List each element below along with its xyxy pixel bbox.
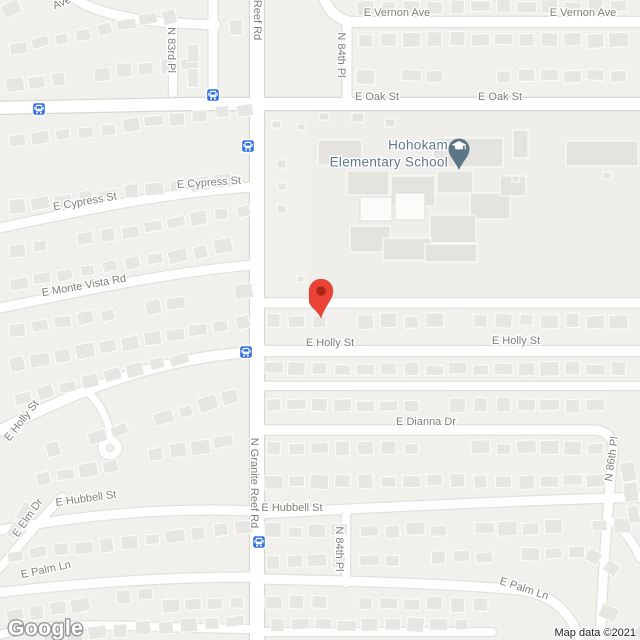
marker-inner-dot <box>316 286 326 296</box>
school-poi-label-line1[interactable]: Hohokam <box>388 138 448 153</box>
map-svg: AveE Vernon AveE Vernon AveReef RdN 83rd… <box>0 0 640 640</box>
map-layers: AveE Vernon AveE Vernon AveReef RdN 83rd… <box>0 0 640 640</box>
street-label-dianna-dr: E Dianna Dr <box>396 416 456 428</box>
street-label-hubbell-st-e: E Hubbell St <box>261 502 322 514</box>
google-logo-watermark[interactable]: Google <box>8 617 83 640</box>
street-label-n-84th-pl-top: N 84th Pl <box>335 32 347 77</box>
street-label-vernon-ave-1: E Vernon Ave <box>364 7 430 19</box>
street-label-holly-st-e1: E Holly St <box>306 337 354 349</box>
bus-stop-icon[interactable] <box>242 140 255 153</box>
map-canvas[interactable]: AveE Vernon AveE Vernon AveReef RdN 83rd… <box>0 0 640 640</box>
street-label-oak-st-2: E Oak St <box>478 91 522 103</box>
street-label-n-84th-pl-bottom: N 84th Pl <box>333 526 345 571</box>
bus-stop-icon[interactable] <box>207 89 220 102</box>
bus-stop-icon[interactable] <box>253 536 266 549</box>
bus-stop-icon[interactable] <box>33 103 46 116</box>
street-label-granite-reef-rd: N Granite Reef Rd <box>248 438 260 528</box>
street-label-n-83rd-pl: N 83rd Pl <box>165 27 177 73</box>
road <box>0 104 640 108</box>
school-poi-label-line2[interactable]: Elementary School <box>330 155 448 170</box>
map-attribution: Map data ©2021 <box>555 627 637 639</box>
street-label-reef-rd-top: Reef Rd <box>251 0 263 40</box>
bus-stop-icon[interactable] <box>240 346 253 359</box>
street-label-vernon-ave-2: E Vernon Ave <box>550 7 616 19</box>
street-label-holly-st-e2: E Holly St <box>492 335 540 347</box>
street-label-oak-st-1: E Oak St <box>355 91 399 103</box>
